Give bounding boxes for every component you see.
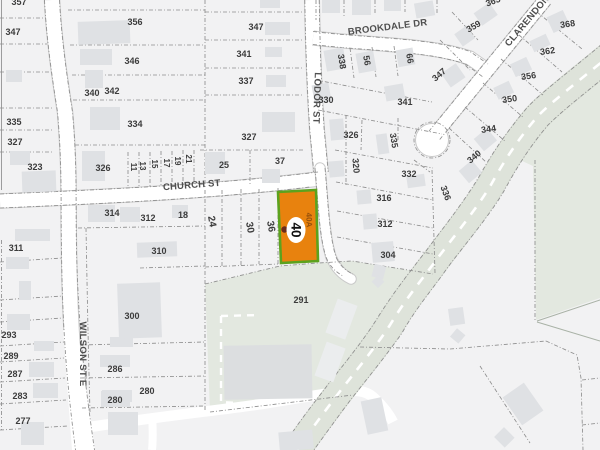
- svg-text:19: 19: [173, 157, 182, 166]
- svg-text:347: 347: [5, 27, 20, 37]
- svg-text:350: 350: [501, 93, 517, 105]
- svg-text:340: 340: [84, 88, 99, 98]
- svg-text:346: 346: [124, 56, 139, 66]
- svg-text:310: 310: [151, 246, 166, 256]
- svg-text:344: 344: [480, 123, 496, 135]
- svg-text:342: 342: [104, 86, 119, 96]
- svg-text:312: 312: [140, 213, 155, 223]
- svg-text:323: 323: [27, 162, 42, 172]
- svg-text:332: 332: [401, 169, 416, 179]
- svg-text:362: 362: [539, 45, 555, 57]
- svg-text:291: 291: [293, 295, 308, 305]
- svg-text:66: 66: [404, 53, 416, 65]
- svg-text:326: 326: [95, 163, 110, 173]
- svg-text:287: 287: [7, 369, 22, 379]
- svg-text:25: 25: [219, 160, 229, 170]
- svg-text:LODOR ST: LODOR ST: [310, 72, 323, 124]
- svg-text:326: 326: [343, 130, 358, 140]
- svg-text:13: 13: [138, 162, 147, 171]
- svg-text:293: 293: [1, 330, 16, 340]
- svg-text:341: 341: [397, 97, 412, 107]
- svg-text:347: 347: [248, 22, 263, 32]
- svg-text:18: 18: [178, 210, 188, 220]
- svg-text:280: 280: [107, 395, 122, 405]
- svg-text:40A: 40A: [304, 213, 314, 228]
- svg-text:327: 327: [241, 132, 256, 142]
- svg-text:289: 289: [3, 351, 18, 361]
- svg-text:283: 283: [12, 391, 27, 401]
- svg-text:21: 21: [184, 155, 193, 164]
- svg-text:280: 280: [139, 386, 154, 396]
- svg-text:311: 311: [9, 243, 24, 253]
- svg-text:368: 368: [559, 18, 575, 30]
- svg-text:335: 335: [6, 117, 21, 127]
- svg-text:37: 37: [275, 156, 285, 166]
- svg-text:40: 40: [289, 222, 304, 237]
- svg-text:327: 327: [7, 137, 22, 147]
- svg-text:277: 277: [15, 416, 30, 426]
- svg-text:356: 356: [520, 70, 536, 82]
- svg-text:15: 15: [150, 160, 159, 169]
- svg-text:17: 17: [162, 159, 171, 168]
- svg-text:314: 314: [104, 208, 119, 218]
- svg-text:320: 320: [350, 158, 361, 174]
- svg-text:286: 286: [107, 364, 122, 374]
- svg-text:316: 316: [376, 193, 391, 203]
- svg-text:304: 304: [380, 250, 395, 260]
- svg-text:357: 357: [11, 0, 26, 7]
- svg-text:312: 312: [377, 219, 392, 229]
- svg-text:300: 300: [124, 311, 139, 321]
- svg-text:341: 341: [236, 49, 251, 59]
- svg-text:56: 56: [361, 55, 373, 67]
- svg-text:WILSON ST E: WILSON ST E: [77, 321, 88, 386]
- svg-text:11: 11: [129, 163, 138, 172]
- svg-text:334: 334: [127, 119, 142, 129]
- svg-text:356: 356: [127, 17, 142, 27]
- svg-text:337: 337: [238, 76, 253, 86]
